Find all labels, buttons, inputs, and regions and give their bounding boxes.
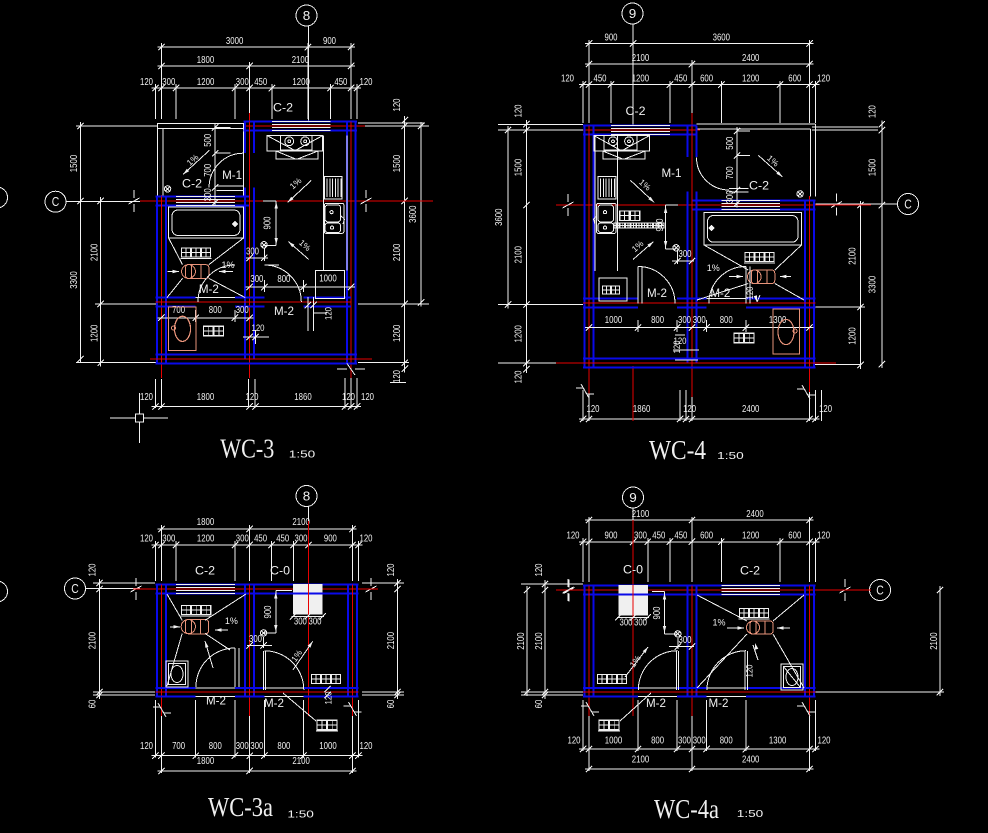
svg-text:300: 300 bbox=[634, 617, 647, 629]
svg-text:120: 120 bbox=[140, 533, 153, 545]
svg-text:450: 450 bbox=[594, 73, 607, 85]
svg-text:700: 700 bbox=[172, 740, 185, 752]
svg-text:2100: 2100 bbox=[515, 632, 527, 650]
svg-text:120: 120 bbox=[674, 336, 687, 346]
svg-text:2100: 2100 bbox=[87, 632, 99, 650]
svg-text:1200: 1200 bbox=[632, 73, 650, 85]
svg-text:300: 300 bbox=[250, 273, 263, 285]
svg-text:2400: 2400 bbox=[746, 508, 764, 520]
svg-text:300: 300 bbox=[620, 617, 633, 629]
svg-text:1200: 1200 bbox=[742, 73, 760, 85]
svg-text:120: 120 bbox=[568, 735, 581, 747]
svg-text:120: 120 bbox=[745, 287, 755, 300]
svg-text:2100: 2100 bbox=[292, 755, 310, 767]
svg-text:120: 120 bbox=[361, 391, 374, 403]
svg-text:500: 500 bbox=[724, 137, 736, 150]
svg-text:2100: 2100 bbox=[385, 632, 397, 650]
svg-text:600: 600 bbox=[788, 73, 801, 85]
svg-text:1800: 1800 bbox=[197, 516, 215, 528]
svg-text:M-2: M-2 bbox=[206, 694, 226, 708]
svg-text:1500: 1500 bbox=[867, 159, 879, 177]
svg-text:800: 800 bbox=[277, 740, 290, 752]
svg-text:800: 800 bbox=[720, 735, 733, 747]
svg-text:500: 500 bbox=[202, 134, 214, 147]
svg-text:120: 120 bbox=[140, 76, 153, 88]
svg-text:1000: 1000 bbox=[319, 740, 337, 752]
svg-text:800: 800 bbox=[209, 740, 222, 752]
svg-text:1:50: 1:50 bbox=[737, 808, 764, 820]
svg-text:120: 120 bbox=[818, 735, 831, 747]
svg-text:120: 120 bbox=[867, 105, 879, 118]
svg-text:120: 120 bbox=[360, 76, 373, 88]
svg-text:M-2: M-2 bbox=[646, 696, 666, 710]
svg-text:2100: 2100 bbox=[632, 508, 650, 520]
svg-text:9: 9 bbox=[629, 490, 637, 505]
svg-text:300: 300 bbox=[236, 76, 249, 88]
svg-text:900: 900 bbox=[605, 31, 618, 43]
svg-text:2400: 2400 bbox=[742, 52, 760, 64]
svg-text:M-2: M-2 bbox=[709, 696, 729, 710]
svg-text:900: 900 bbox=[323, 35, 336, 47]
svg-text:C-2: C-2 bbox=[273, 101, 293, 115]
svg-text:60: 60 bbox=[533, 700, 545, 709]
svg-text:300: 300 bbox=[236, 740, 249, 752]
svg-text:450: 450 bbox=[674, 73, 687, 85]
svg-text:3300: 3300 bbox=[867, 276, 879, 294]
svg-text:M-2: M-2 bbox=[647, 286, 667, 300]
svg-text:C-0: C-0 bbox=[623, 563, 643, 577]
svg-text:M-2: M-2 bbox=[710, 286, 730, 300]
svg-text:1200: 1200 bbox=[197, 76, 215, 88]
svg-text:C: C bbox=[876, 583, 884, 598]
svg-text:2100: 2100 bbox=[89, 244, 101, 262]
svg-text:C: C bbox=[71, 581, 79, 596]
svg-text:8: 8 bbox=[303, 8, 311, 23]
svg-text:C-2: C-2 bbox=[182, 177, 202, 191]
svg-text:300: 300 bbox=[250, 740, 263, 752]
svg-text:1%: 1% bbox=[712, 618, 725, 628]
svg-text:300: 300 bbox=[693, 314, 706, 326]
svg-text:1860: 1860 bbox=[633, 403, 651, 415]
svg-text:WC-3a: WC-3a bbox=[208, 792, 273, 822]
svg-text:1200: 1200 bbox=[391, 324, 403, 342]
svg-text:1300: 1300 bbox=[769, 735, 787, 747]
svg-text:300: 300 bbox=[162, 533, 175, 545]
svg-text:300: 300 bbox=[294, 616, 307, 628]
svg-text:300: 300 bbox=[162, 76, 175, 88]
svg-text:120: 120 bbox=[817, 73, 830, 85]
svg-text:1800: 1800 bbox=[197, 391, 215, 403]
svg-text:1:50: 1:50 bbox=[289, 449, 316, 461]
svg-text:120: 120 bbox=[360, 740, 373, 752]
svg-text:1000: 1000 bbox=[319, 273, 337, 285]
svg-text:3600: 3600 bbox=[407, 205, 419, 223]
svg-text:WC-4a: WC-4a bbox=[654, 794, 719, 824]
svg-text:60: 60 bbox=[87, 700, 99, 709]
svg-text:1%: 1% bbox=[225, 616, 238, 626]
svg-text:3600: 3600 bbox=[713, 31, 731, 43]
svg-text:WC-4: WC-4 bbox=[649, 435, 706, 465]
svg-text:300: 300 bbox=[309, 616, 322, 628]
svg-text:1500: 1500 bbox=[512, 159, 524, 177]
svg-text:2100: 2100 bbox=[512, 246, 524, 264]
svg-text:300: 300 bbox=[246, 246, 259, 258]
svg-text:120: 120 bbox=[745, 665, 755, 678]
svg-text:800: 800 bbox=[720, 314, 733, 326]
svg-text:3600: 3600 bbox=[493, 208, 505, 226]
svg-text:M-1: M-1 bbox=[222, 168, 242, 182]
svg-text:450: 450 bbox=[276, 533, 289, 545]
svg-text:1200: 1200 bbox=[292, 76, 310, 88]
svg-text:700: 700 bbox=[724, 166, 736, 179]
svg-text:120: 120 bbox=[561, 73, 574, 85]
svg-text:120: 120 bbox=[252, 323, 265, 333]
svg-text:3000: 3000 bbox=[226, 35, 244, 47]
svg-text:300: 300 bbox=[295, 533, 308, 545]
svg-text:120: 120 bbox=[140, 391, 153, 403]
svg-text:1800: 1800 bbox=[197, 755, 215, 767]
svg-text:120: 120 bbox=[246, 391, 259, 403]
svg-text:C: C bbox=[52, 194, 60, 209]
svg-text:1200: 1200 bbox=[742, 529, 760, 541]
svg-text:M-1: M-1 bbox=[662, 166, 682, 180]
svg-text:120: 120 bbox=[360, 533, 373, 545]
svg-text:2100: 2100 bbox=[533, 632, 545, 650]
svg-text:1800: 1800 bbox=[197, 54, 215, 66]
svg-text:120: 120 bbox=[817, 529, 830, 541]
svg-text:1860: 1860 bbox=[294, 391, 312, 403]
svg-text:900: 900 bbox=[263, 605, 274, 618]
svg-text:300: 300 bbox=[678, 314, 691, 326]
svg-text:2100: 2100 bbox=[847, 247, 859, 265]
svg-text:C-2: C-2 bbox=[740, 564, 760, 578]
svg-text:1200: 1200 bbox=[847, 327, 859, 345]
svg-text:300: 300 bbox=[693, 735, 706, 747]
svg-text:120: 120 bbox=[87, 563, 99, 576]
svg-text:450: 450 bbox=[652, 529, 665, 541]
svg-text:300: 300 bbox=[236, 533, 249, 545]
svg-text:2100: 2100 bbox=[391, 244, 403, 262]
svg-text:2400: 2400 bbox=[742, 403, 760, 415]
svg-text:1%: 1% bbox=[707, 263, 720, 273]
svg-text:8: 8 bbox=[303, 489, 311, 504]
svg-text:1:50: 1:50 bbox=[287, 809, 314, 821]
svg-text:1200: 1200 bbox=[512, 325, 524, 343]
svg-text:120: 120 bbox=[683, 403, 696, 415]
svg-text:60: 60 bbox=[385, 700, 397, 709]
svg-text:450: 450 bbox=[254, 533, 267, 545]
svg-text:WC-3: WC-3 bbox=[220, 434, 274, 464]
svg-text:2400: 2400 bbox=[742, 754, 760, 766]
svg-text:1000: 1000 bbox=[605, 735, 623, 747]
svg-text:120: 120 bbox=[391, 98, 403, 111]
svg-text:C-0: C-0 bbox=[270, 564, 290, 578]
svg-text:300: 300 bbox=[249, 633, 262, 645]
svg-text:1200: 1200 bbox=[89, 324, 101, 342]
svg-text:120: 120 bbox=[567, 529, 580, 541]
svg-text:800: 800 bbox=[209, 304, 222, 316]
svg-text:900: 900 bbox=[263, 216, 274, 229]
svg-text:120: 120 bbox=[140, 740, 153, 752]
svg-text:2100: 2100 bbox=[632, 754, 650, 766]
svg-text:120: 120 bbox=[512, 104, 524, 117]
svg-text:300: 300 bbox=[236, 304, 249, 316]
svg-text:1500: 1500 bbox=[68, 155, 80, 173]
svg-text:120: 120 bbox=[385, 563, 397, 576]
svg-text:300: 300 bbox=[679, 248, 692, 260]
svg-text:3300: 3300 bbox=[68, 271, 80, 289]
svg-text:120: 120 bbox=[342, 391, 355, 403]
svg-text:C-2: C-2 bbox=[626, 104, 646, 118]
svg-text:120: 120 bbox=[533, 563, 545, 576]
svg-text:120: 120 bbox=[587, 403, 600, 415]
svg-text:C: C bbox=[904, 197, 912, 212]
svg-text:120: 120 bbox=[391, 370, 403, 383]
svg-text:1000: 1000 bbox=[605, 314, 623, 326]
svg-text:300: 300 bbox=[202, 188, 214, 201]
svg-text:600: 600 bbox=[788, 529, 801, 541]
svg-text:300: 300 bbox=[678, 735, 691, 747]
svg-text:450: 450 bbox=[254, 76, 267, 88]
svg-text:2100: 2100 bbox=[632, 52, 650, 64]
svg-text:2100: 2100 bbox=[928, 632, 940, 650]
svg-text:600: 600 bbox=[700, 73, 713, 85]
svg-text:M-2: M-2 bbox=[264, 696, 284, 710]
svg-text:C-2: C-2 bbox=[195, 564, 215, 578]
svg-text:800: 800 bbox=[277, 273, 290, 285]
svg-text:800: 800 bbox=[651, 735, 664, 747]
svg-text:C-2: C-2 bbox=[749, 179, 769, 193]
svg-text:700: 700 bbox=[202, 164, 214, 177]
svg-text:M-2: M-2 bbox=[274, 304, 294, 318]
svg-text:600: 600 bbox=[700, 529, 713, 541]
svg-text:700: 700 bbox=[172, 304, 185, 316]
svg-text:1500: 1500 bbox=[391, 155, 403, 173]
svg-text:2100: 2100 bbox=[292, 54, 310, 66]
svg-text:1:50: 1:50 bbox=[717, 450, 744, 462]
svg-text:800: 800 bbox=[651, 314, 664, 326]
svg-text:300: 300 bbox=[634, 529, 647, 541]
svg-text:120: 120 bbox=[512, 370, 524, 383]
svg-text:450: 450 bbox=[334, 76, 347, 88]
svg-text:900: 900 bbox=[605, 529, 618, 541]
svg-text:900: 900 bbox=[324, 533, 337, 545]
svg-text:9: 9 bbox=[629, 6, 637, 21]
svg-text:450: 450 bbox=[674, 529, 687, 541]
svg-text:900: 900 bbox=[652, 606, 663, 619]
svg-text:2100: 2100 bbox=[292, 516, 310, 528]
svg-text:1200: 1200 bbox=[197, 533, 215, 545]
